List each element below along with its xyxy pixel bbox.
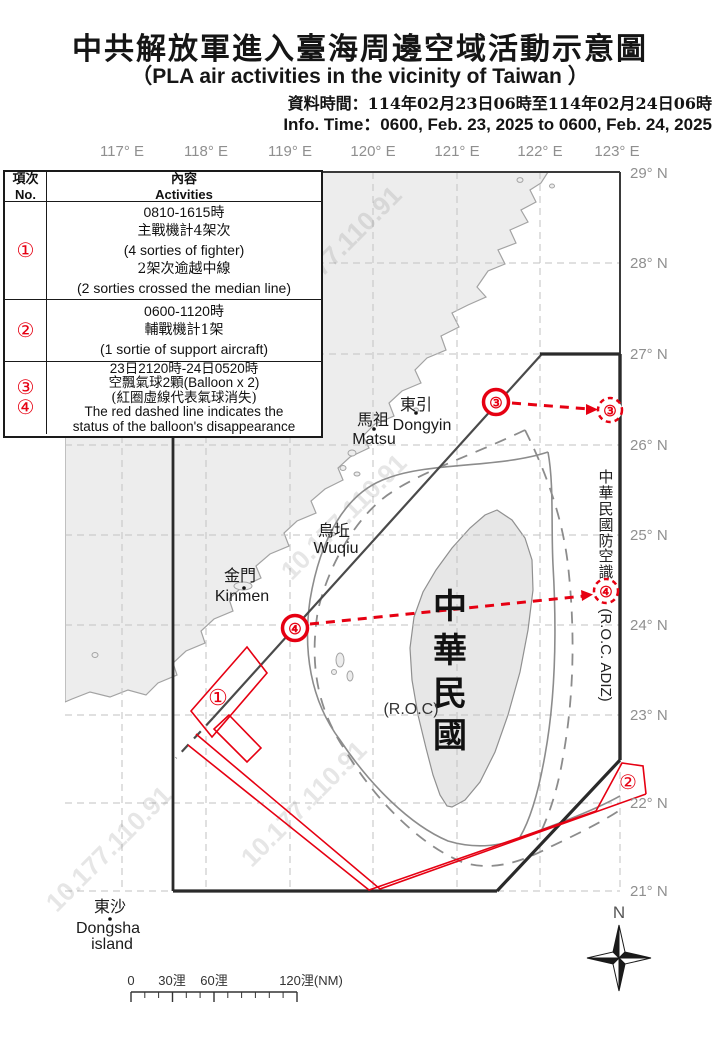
roc-abbrev-label: (R.O.C) xyxy=(383,701,438,718)
pla-activity-map-page: 中共解放軍進入臺海周邊空域活動示意圖 （PLA air activities i… xyxy=(0,0,720,1040)
balloon-4-start-marker: ④ xyxy=(283,616,308,641)
svg-text:25° N: 25° N xyxy=(630,527,668,544)
balloon-3-end-marker: ③ xyxy=(598,398,622,422)
svg-text:119° E: 119° E xyxy=(268,143,312,160)
svg-text:Wuqiu: Wuqiu xyxy=(313,540,358,557)
svg-text:121° E: 121° E xyxy=(434,143,479,160)
svg-text:123° E: 123° E xyxy=(594,143,639,160)
svg-text:國: 國 xyxy=(433,716,467,756)
no-header-en: No. xyxy=(15,187,36,202)
activity-area-1-outline xyxy=(191,647,267,762)
svg-text:Dongyin: Dongyin xyxy=(393,417,452,434)
compass-rose-icon xyxy=(587,925,651,991)
row3-number: ③ ④ xyxy=(5,362,47,434)
balloon-3-start-marker: ③ xyxy=(484,390,509,415)
svg-text:120° E: 120° E xyxy=(350,143,395,160)
balloon-3-arrow xyxy=(512,403,598,415)
svg-text:③: ③ xyxy=(603,403,616,420)
svg-text:117° E: 117° E xyxy=(100,143,144,160)
svg-text:④: ④ xyxy=(599,584,612,601)
svg-text:中: 中 xyxy=(433,587,467,627)
svg-text:Matsu: Matsu xyxy=(352,431,396,448)
svg-text:118° E: 118° E xyxy=(184,143,228,160)
svg-text:馬祖: 馬祖 xyxy=(357,410,389,429)
area-2-label: ② xyxy=(619,772,637,794)
row2-activities: 0600-1120時 輔戰機計1架 (1 sortie of support a… xyxy=(47,300,321,362)
balloon-4-end-marker: ④ xyxy=(594,579,618,603)
svg-text:27° N: 27° N xyxy=(630,346,668,363)
row1-number: ① xyxy=(5,202,47,300)
svg-text:60浬: 60浬 xyxy=(200,973,227,988)
activities-table: 項次 No. 內容 Activities ① 0810-1615時 主戰機計4架… xyxy=(3,170,323,438)
svg-text:26° N: 26° N xyxy=(630,437,668,454)
scale-bar xyxy=(131,992,297,1002)
svg-text:0: 0 xyxy=(127,973,134,988)
svg-text:122° E: 122° E xyxy=(517,143,562,160)
svg-text:④: ④ xyxy=(288,621,301,638)
median-line-dashed-end xyxy=(176,718,213,758)
svg-text:東沙: 東沙 xyxy=(94,897,126,916)
svg-text:24° N: 24° N xyxy=(630,617,668,634)
row1-activities: 0810-1615時 主戰機計4架次 (4 sorties of fighter… xyxy=(47,202,321,300)
svg-text:22° N: 22° N xyxy=(630,795,668,812)
svg-text:29° N: 29° N xyxy=(630,165,668,182)
svg-text:30浬: 30浬 xyxy=(158,973,185,988)
longitude-labels: 117° E 118° E 119° E 120° E 121° E 122° … xyxy=(100,143,640,160)
compass-north-label: N xyxy=(613,903,625,922)
svg-text:28° N: 28° N xyxy=(630,255,668,272)
svg-text:120浬(NM): 120浬(NM) xyxy=(279,973,343,988)
table-header-no: 項次 No. xyxy=(5,172,47,202)
adiz-edge-label-en: (R.O.C. ADIZ) xyxy=(597,608,614,701)
svg-text:華: 華 xyxy=(433,631,467,671)
svg-text:Kinmen: Kinmen xyxy=(215,588,269,605)
svg-text:金門: 金門 xyxy=(224,566,256,585)
row2-number: ② xyxy=(5,300,47,362)
taiwan-island xyxy=(410,510,533,807)
scale-bar-labels: 0 30浬 60浬 120浬(NM) xyxy=(127,973,342,988)
svg-text:東引: 東引 xyxy=(400,395,432,414)
svg-text:21° N: 21° N xyxy=(630,883,668,900)
area-1-label: ① xyxy=(208,685,228,710)
table-header-content: 內容 Activities xyxy=(47,172,321,202)
svg-text:10.177.110.91: 10.177.110.91 xyxy=(235,735,373,873)
content-header-zh: 內容 xyxy=(171,172,197,187)
row3-activities: 23日2120時-24日0520時 空飄氣球2顆(Balloon x 2) (紅… xyxy=(47,362,321,434)
no-header-zh: 項次 xyxy=(12,172,38,187)
svg-text:烏坵: 烏坵 xyxy=(318,521,350,540)
svg-text:23° N: 23° N xyxy=(630,707,668,724)
content-header-en: Activities xyxy=(155,187,213,202)
svg-text:③: ③ xyxy=(489,395,502,412)
svg-text:island: island xyxy=(91,936,133,953)
taiwan-activity-map: 10.177.110.91 10.177.110.91 10.177.110.9… xyxy=(0,0,720,1040)
svg-text:Dongsha: Dongsha xyxy=(76,920,140,937)
dongyin-dot xyxy=(414,411,418,415)
